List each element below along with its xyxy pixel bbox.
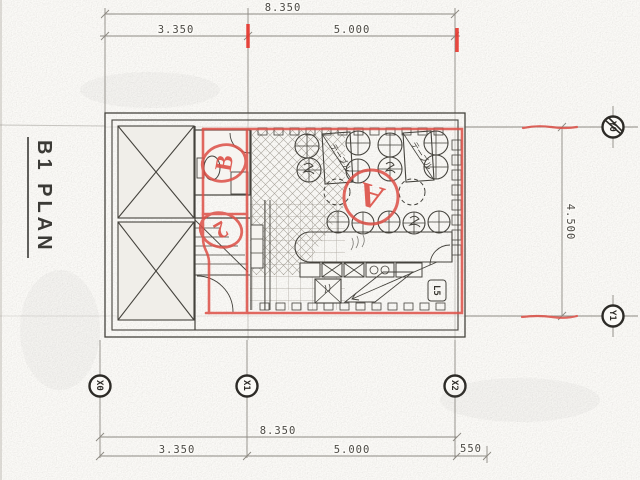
dim-top-seg1: 3.350: [158, 24, 195, 36]
dim-top-seg2: 5.000: [334, 24, 371, 36]
dim-bottom-seg2: 5.000: [334, 444, 371, 456]
left-shaft-rooms: [118, 126, 194, 320]
scanned-floorplan-page: テーブル テーブル: [0, 0, 640, 480]
svg-text:B1 PLAN: B1 PLAN: [33, 140, 55, 254]
dim-bottom-seg1: 3.350: [159, 444, 196, 456]
grid-marker-x1: X1: [237, 376, 258, 397]
dim-bottom-total: 8.350: [260, 425, 297, 437]
dim-right-total: 4.500: [564, 204, 576, 241]
scan-edge-artifact: [0, 0, 2, 480]
grid-marker-y1: Y1: [603, 306, 624, 327]
grid-marker-y0: Y0: [603, 117, 624, 138]
svg-text:Y1: Y1: [607, 310, 617, 321]
b1-floorplan-drawing: テーブル テーブル: [0, 0, 640, 480]
dim-top-total: 8.350: [265, 2, 302, 14]
svg-text:X0: X0: [94, 380, 104, 391]
svg-text:X1: X1: [241, 380, 251, 391]
stair-level-label: L5: [431, 285, 441, 296]
grid-marker-x0: X0: [90, 376, 111, 397]
dim-bottom-seg3: 550: [460, 443, 482, 455]
